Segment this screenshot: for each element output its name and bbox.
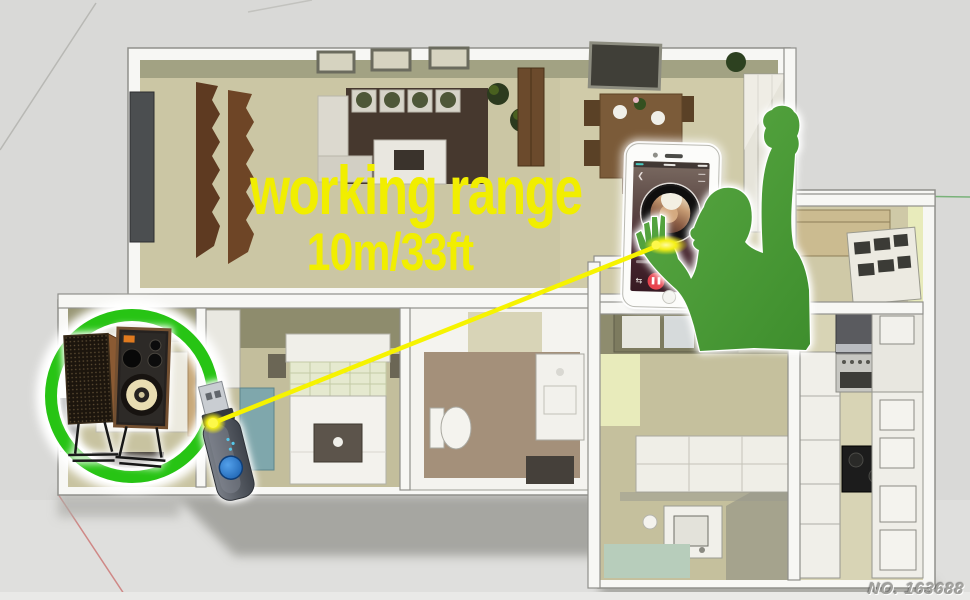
shuffle-icon: ⇆ [635, 277, 642, 285]
shower-mat [526, 456, 574, 484]
working-range-label: working range [250, 156, 562, 225]
phone-speaker-slot [665, 154, 683, 158]
cooktop [842, 446, 892, 492]
heart-icon: ❤ [694, 264, 702, 273]
double-bed [620, 436, 794, 501]
apartment-3d-floor-plan [0, 0, 970, 600]
usb-bluetooth-receiver [0, 0, 970, 600]
artist-line [636, 260, 656, 264]
playlist-icon [698, 174, 705, 182]
range-highlight-circle [45, 309, 219, 483]
bed-tray [314, 424, 362, 462]
product-range-illustration: ❮ ❤ ⇆ ❚❚ ▶ [0, 0, 970, 600]
song-title-line [636, 253, 666, 257]
sketch-axis-lines [0, 0, 970, 600]
wardrobe-mirror [614, 312, 738, 352]
balcony-window [130, 92, 154, 242]
phone-camera-dot [653, 153, 658, 158]
shoe-cabinet [794, 210, 890, 256]
outer-walls [58, 48, 935, 588]
room-bedroom1 [200, 308, 408, 487]
range-distance-value: 10m/33ft [226, 226, 554, 279]
listener-silhouette [0, 0, 970, 600]
floor-mat [604, 544, 690, 578]
wireless-connection-line [0, 0, 970, 600]
background [0, 0, 970, 600]
wardrobe [744, 74, 786, 232]
play-button-icon: ▶ [671, 273, 688, 290]
teal-wardrobe [240, 388, 274, 470]
cast-shadows [58, 493, 935, 598]
bookshelf-speakers [0, 0, 970, 600]
wall-picture [589, 43, 660, 89]
single-bed [286, 334, 390, 484]
status-bar [634, 161, 710, 169]
bottom-strip [0, 592, 970, 600]
room-kitchen [794, 308, 923, 580]
photo-frame-grid [847, 227, 921, 305]
smartphone-music-player: ❮ ❤ ⇆ ❚❚ ▶ [622, 143, 720, 309]
pause-button-icon: ❚❚ [647, 272, 664, 289]
back-chevron-icon: ❮ [637, 172, 644, 180]
album-art-vinyl [641, 183, 700, 242]
kitchen-cabinets-right [872, 308, 923, 578]
kitchen-cabinets-left [798, 352, 840, 578]
plants [487, 52, 746, 132]
home-button [662, 290, 676, 304]
vanity-sink [536, 354, 584, 440]
range-hood-stove [836, 314, 878, 392]
album-photo [650, 192, 691, 233]
toilet [430, 407, 471, 449]
room-bedroom2 [600, 308, 794, 580]
phone-screen: ❮ ❤ ⇆ ❚❚ ▶ [630, 161, 709, 293]
window-panels [318, 48, 468, 72]
dongle-button [217, 454, 245, 482]
washing-machine [643, 506, 722, 558]
interior-walls [58, 48, 935, 588]
room-bathroom [405, 308, 598, 490]
product-number: NO. 163688 [867, 581, 965, 599]
